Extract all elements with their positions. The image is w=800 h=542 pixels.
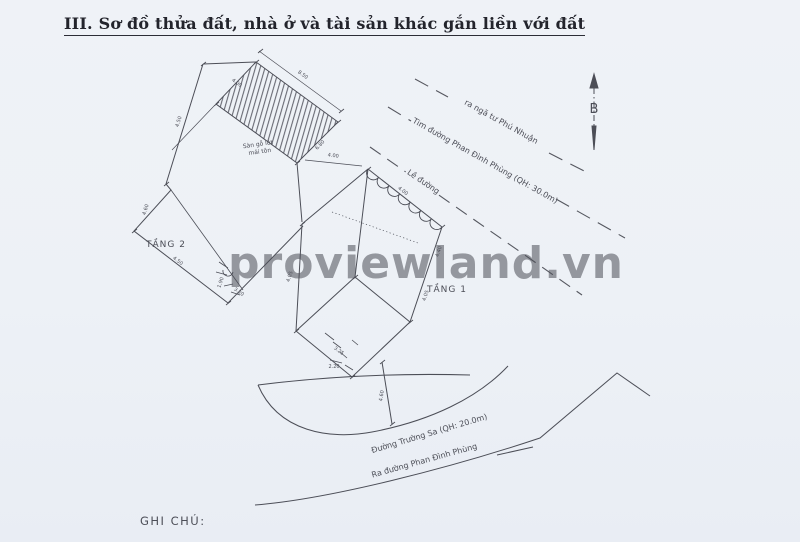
dim: 4.60 [378, 390, 386, 402]
dim: 4.05 [421, 289, 430, 301]
site-plan-drawing: B TẦNG 2 TẦNG 1 ra ngã tư Phú Nhuận Tim … [0, 0, 800, 542]
scallop-loops [367, 169, 442, 230]
north-label: B [590, 102, 599, 117]
exit-arrow-line [497, 447, 533, 455]
dim: 2.20 [328, 364, 339, 370]
plan-labels: TẦNG 2 TẦNG 1 ra ngã tư Phú Nhuận Tim đư… [140, 98, 560, 528]
hatch-note: Sàn gỗ lót mái tôn [242, 139, 276, 158]
scanned-document-page: III. Sơ đồ thửa đất, nhà ở và tài sản kh… [0, 0, 800, 542]
dim: 4.00 [327, 152, 339, 159]
road-curves [255, 366, 650, 505]
dim: 3.25 [332, 345, 345, 356]
dim: 4.50 [171, 255, 184, 266]
north-arrow: B [590, 74, 599, 150]
dim: 4.50 [175, 116, 184, 128]
dim: 1.90 [216, 276, 225, 288]
dim: 8.50 [296, 69, 309, 80]
notes-label: GHI CHÚ: [140, 513, 206, 528]
road-edge-label: Lề đường [405, 167, 441, 196]
north-arrow-head [590, 74, 598, 88]
watermark: proviewland.vn [228, 238, 624, 289]
floor2-label: TẦNG 2 [145, 237, 186, 250]
road-wedge-top [258, 374, 470, 385]
north-arrow-tail [592, 126, 596, 150]
intersection-label: ra ngã tư Phú Nhuận [462, 98, 539, 147]
road-curve-lower [255, 373, 650, 505]
scalloped-wall [368, 169, 442, 227]
